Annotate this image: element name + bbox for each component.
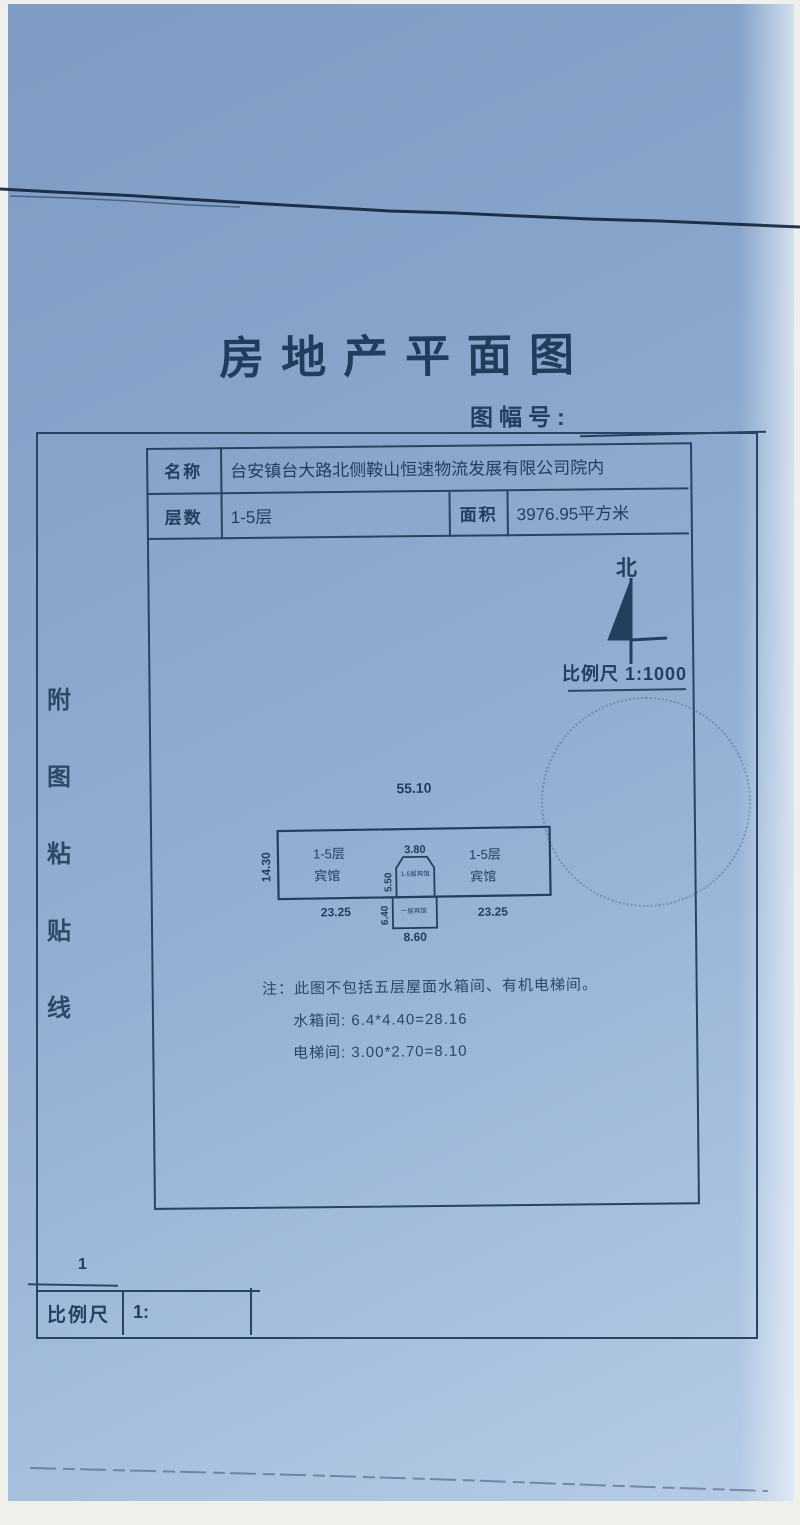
note-line-2: 水箱间: 6.4*4.40=28.16 bbox=[293, 1008, 468, 1031]
name-label-cell: 名称 bbox=[146, 447, 222, 495]
scale-bar-top-border bbox=[38, 1290, 260, 1292]
property-info-table: 名称 台安镇台大路北侧鞍山恒速物流发展有限公司院内 层数 1-5层 面积 397… bbox=[146, 442, 689, 540]
center-upper-room-label: 1-5层宾馆 bbox=[401, 869, 431, 878]
dim-mid-lower: 6.40 bbox=[380, 905, 391, 925]
scanned-floor-plan-document: { "colors": { "ink": "#1e3a5f", "paper_t… bbox=[0, 0, 800, 1525]
scale-bar-ratio-prefix: 1: bbox=[133, 1302, 149, 1323]
paste-line-caption: 附 图 粘 贴 线 bbox=[42, 680, 76, 1023]
area-label-cell: 面积 bbox=[450, 491, 508, 537]
floors-label-cell: 层数 bbox=[146, 494, 222, 540]
right-wing-use: 宾馆 bbox=[470, 869, 496, 884]
paste-line-char: 图 bbox=[42, 757, 76, 792]
dim-bottom-right: 23.25 bbox=[478, 904, 509, 918]
faint-stamp-circle bbox=[541, 697, 751, 907]
center-lower-room-label: 一层宾馆 bbox=[401, 906, 428, 915]
table-row: 名称 台安镇台大路北侧鞍山恒速物流发展有限公司院内 bbox=[146, 442, 688, 495]
dim-mid-upper: 5.50 bbox=[383, 872, 394, 892]
scale-bar-label: 比例尺 bbox=[47, 1300, 110, 1327]
paste-line-char: 线 bbox=[42, 988, 76, 1023]
paste-line-char: 附 bbox=[42, 680, 76, 715]
floors-value-cell: 1-5层 bbox=[222, 492, 450, 539]
dim-bottom-left: 23.25 bbox=[321, 905, 352, 919]
document-title: 房地产平面图 bbox=[175, 318, 636, 388]
dim-mid-top: 3.80 bbox=[404, 844, 426, 856]
scale-bar-divider bbox=[250, 1288, 252, 1335]
north-arrow-icon bbox=[595, 574, 675, 666]
table-row: 层数 1-5层 面积 3976.95平方米 bbox=[146, 489, 688, 540]
map-scale-text: 比例尺 1:1000 bbox=[562, 660, 687, 686]
paste-line-char: 贴 bbox=[42, 911, 76, 946]
dim-left: 14.30 bbox=[259, 852, 273, 883]
sheet-number-label: 图幅号: bbox=[470, 398, 571, 432]
right-wing-floors: 1-5层 bbox=[469, 847, 501, 862]
scale-bar-tick-number: 1 bbox=[78, 1256, 87, 1274]
left-wing-floors: 1-5层 bbox=[313, 846, 345, 861]
name-value-cell: 台安镇台大路北侧鞍山恒速物流发展有限公司院内 bbox=[222, 442, 688, 494]
building-plan-drawing: 55.10 14.30 1-5层 宾馆 1-5层 宾馆 3.80 1-5层宾馆 … bbox=[254, 763, 569, 954]
paste-line-char: 粘 bbox=[42, 834, 76, 869]
scale-bar-divider bbox=[122, 1290, 124, 1335]
area-value-cell: 3976.95平方米 bbox=[508, 489, 688, 536]
note-line-3: 电梯间: 3.00*2.70=8.10 bbox=[293, 1040, 468, 1063]
dim-bottom-mid: 8.60 bbox=[403, 930, 427, 944]
dim-top: 55.10 bbox=[396, 780, 431, 797]
left-wing-use: 宾馆 bbox=[314, 868, 340, 883]
